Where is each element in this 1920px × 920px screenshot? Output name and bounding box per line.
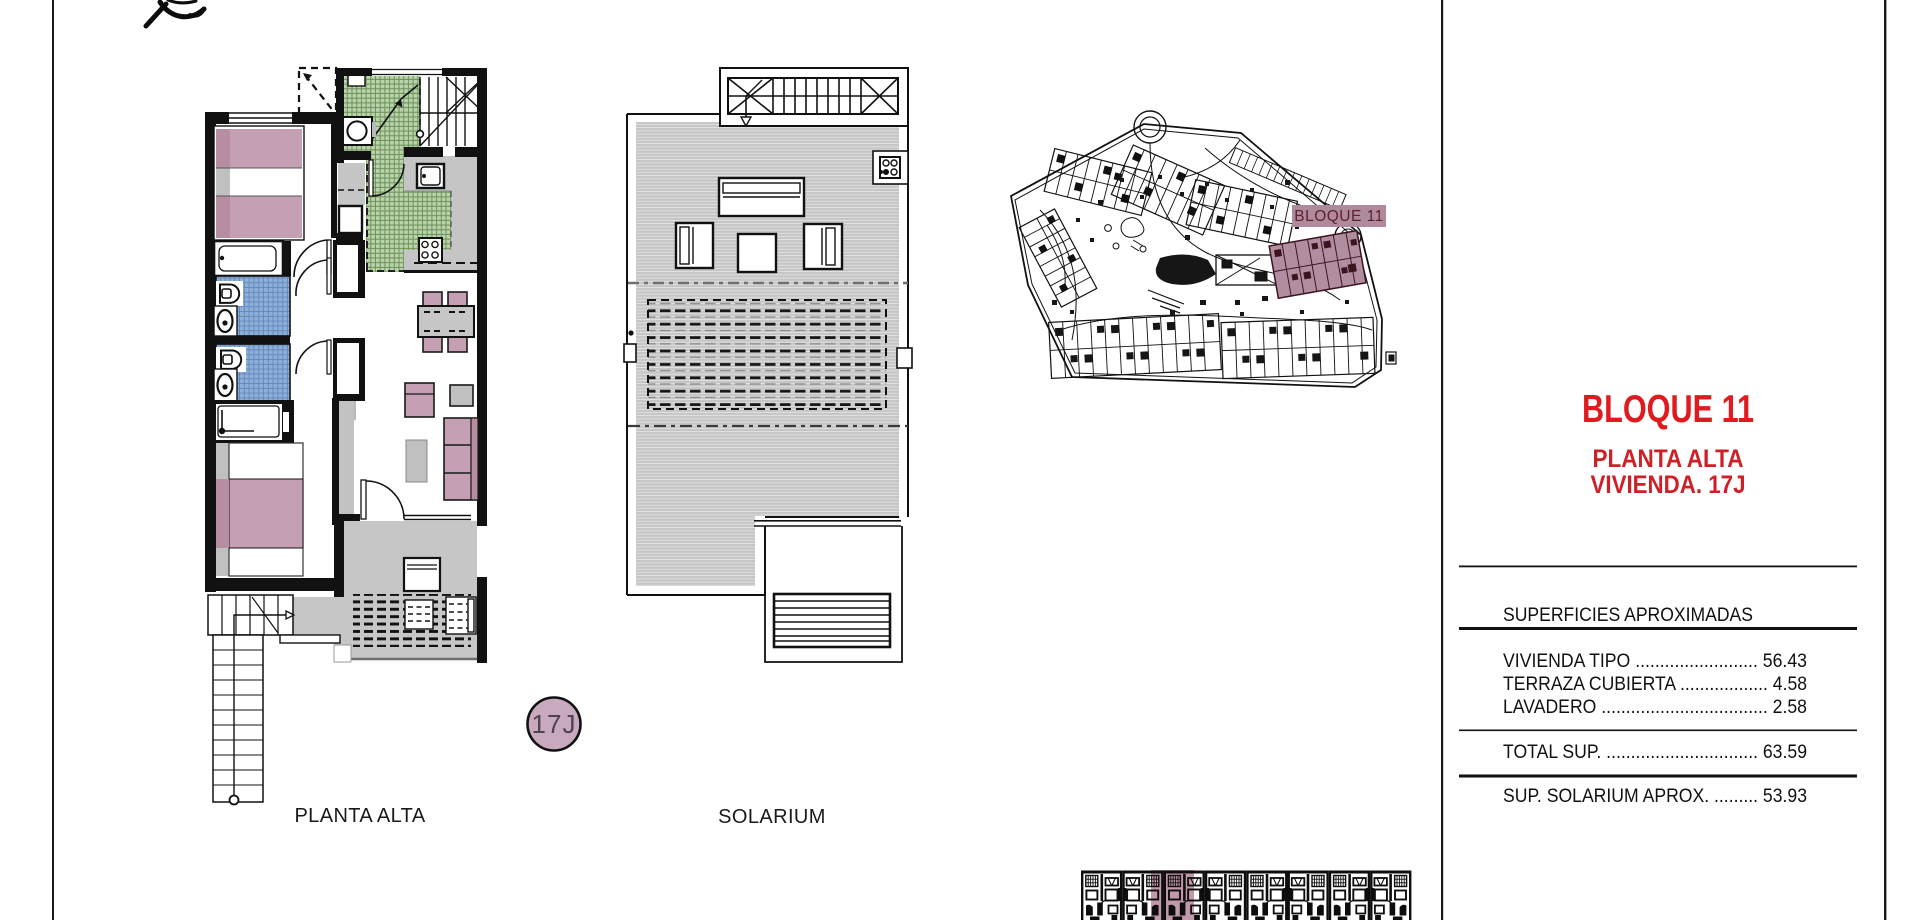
svg-text:BLOQUE 11: BLOQUE 11: [1294, 208, 1384, 225]
svg-text:SOLARIUM: SOLARIUM: [718, 806, 826, 828]
svg-text:SUPERFICIES APROXIMADAS: SUPERFICIES APROXIMADAS: [1503, 604, 1753, 626]
svg-text:BLOQUE 11: BLOQUE 11: [1582, 388, 1754, 431]
svg-text:VIVIENDA TIPO ................: VIVIENDA TIPO ......................... …: [1503, 650, 1807, 672]
svg-text:LAVADERO .....................: LAVADERO ...............................…: [1503, 696, 1807, 718]
svg-text:TOTAL SUP. ...................: TOTAL SUP. .............................…: [1503, 741, 1807, 763]
svg-text:PLANTA ALTA: PLANTA ALTA: [294, 805, 425, 827]
svg-text:SUP. SOLARIUM APROX. .........: SUP. SOLARIUM APROX. ......... 53.93: [1503, 785, 1807, 807]
svg-text:17J: 17J: [532, 709, 577, 739]
svg-text:VIVIENDA. 17J: VIVIENDA. 17J: [1591, 471, 1746, 499]
svg-text:PLANTA ALTA: PLANTA ALTA: [1593, 445, 1744, 473]
svg-text:TERRAZA CUBIERTA .............: TERRAZA CUBIERTA .................. 4.58: [1503, 673, 1807, 695]
